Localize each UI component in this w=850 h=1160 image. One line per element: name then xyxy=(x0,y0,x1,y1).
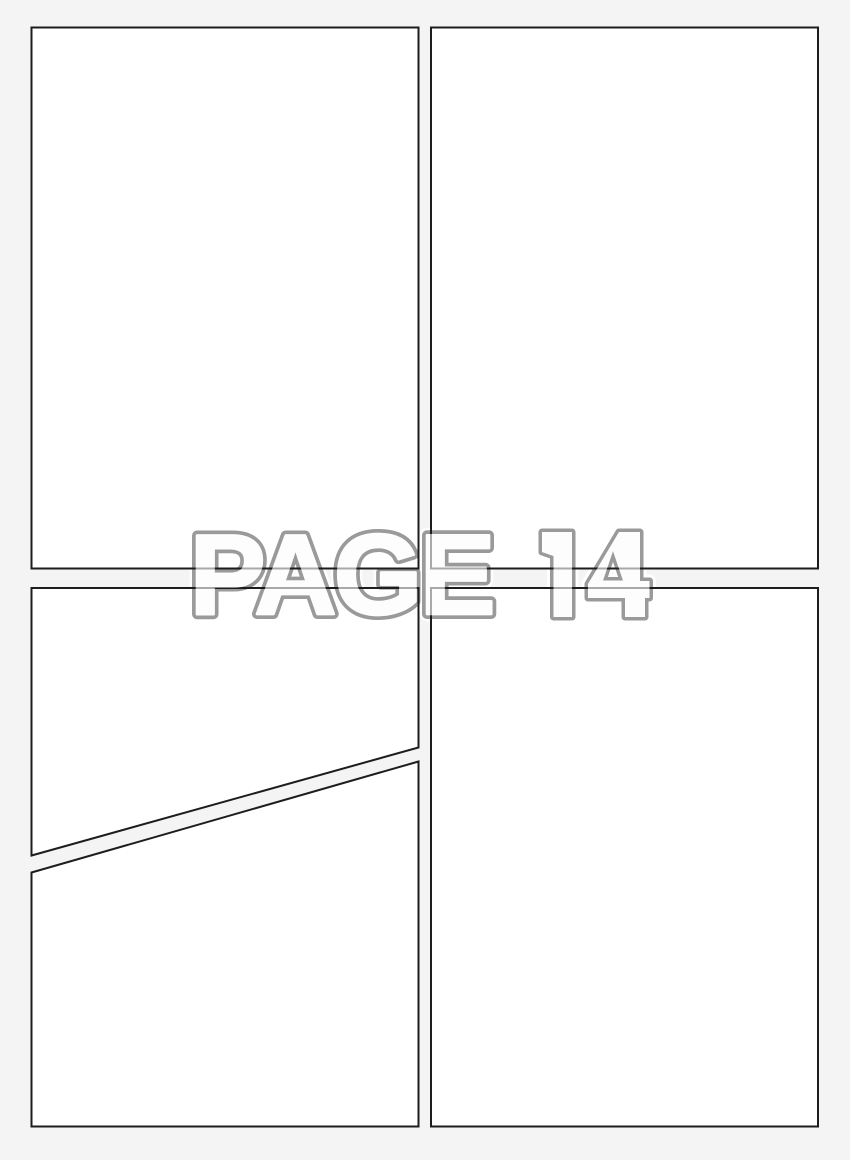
svg-text:PAGE: PAGE xyxy=(189,511,492,639)
